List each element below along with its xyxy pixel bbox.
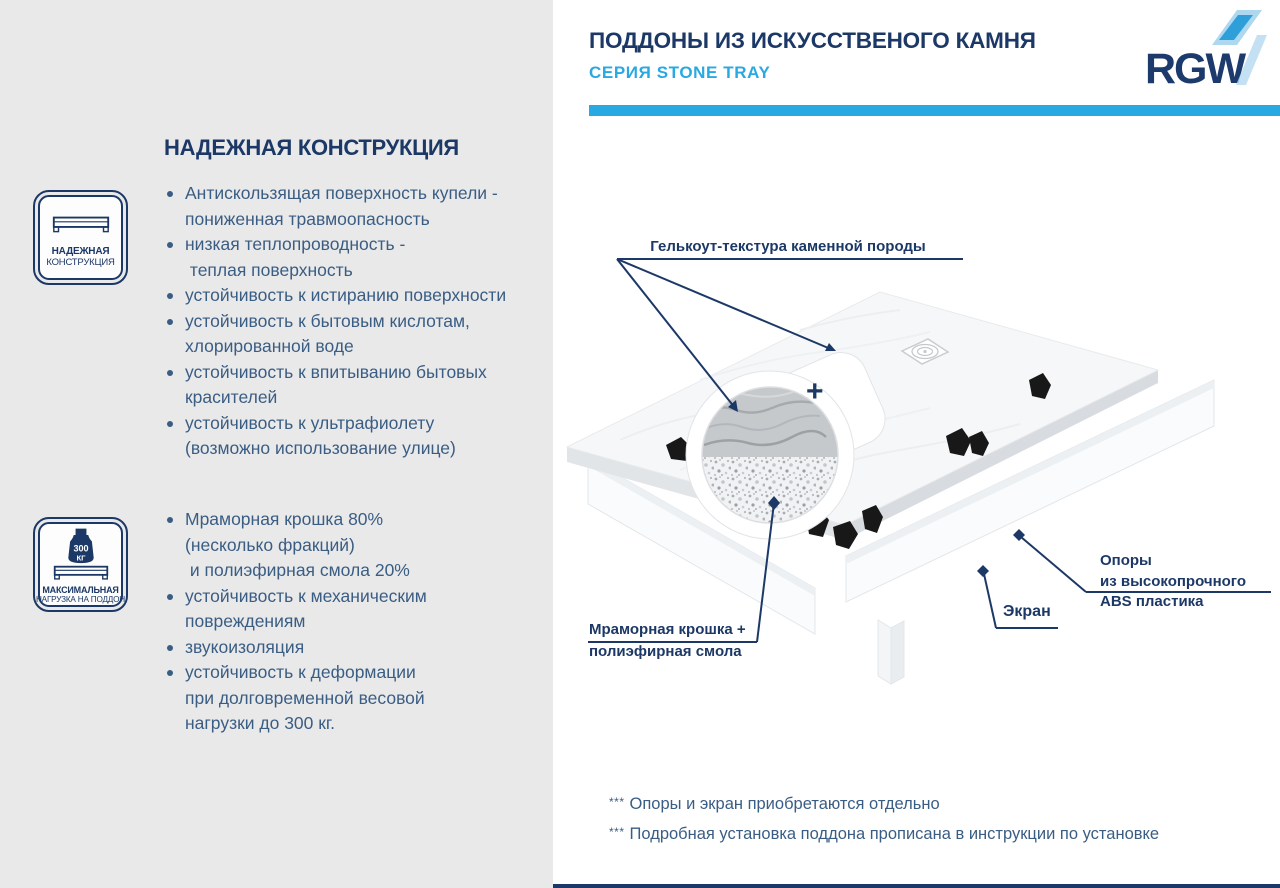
bottom-accent-bar (553, 884, 1280, 888)
corner-piece (878, 620, 904, 684)
label-gelcoat-texture: Гелькоут-текстура каменной породы (612, 238, 964, 255)
footnote-installation: ***Подробная установка поддона прописана… (609, 825, 1159, 844)
plus-sign: + (806, 375, 824, 409)
label-abs-supports: Опоры из высокопрочного ABS пластика (1100, 551, 1246, 613)
footnote-marker: *** (609, 795, 625, 809)
label-screen: Экран (1003, 603, 1051, 621)
footnote-supports: ***Опоры и экран приобретаются отдельно (609, 795, 940, 814)
label-marble-resin: Мраморная крошка + полиэфирная смола (589, 619, 746, 663)
footnote-marker: *** (609, 825, 625, 839)
brochure-page: НАДЕЖНАЯ КОНСТРУКЦИЯ НАДЕЖНАЯ КОНСТРУКЦИ… (0, 0, 1280, 888)
tray-diagram (0, 0, 1280, 888)
